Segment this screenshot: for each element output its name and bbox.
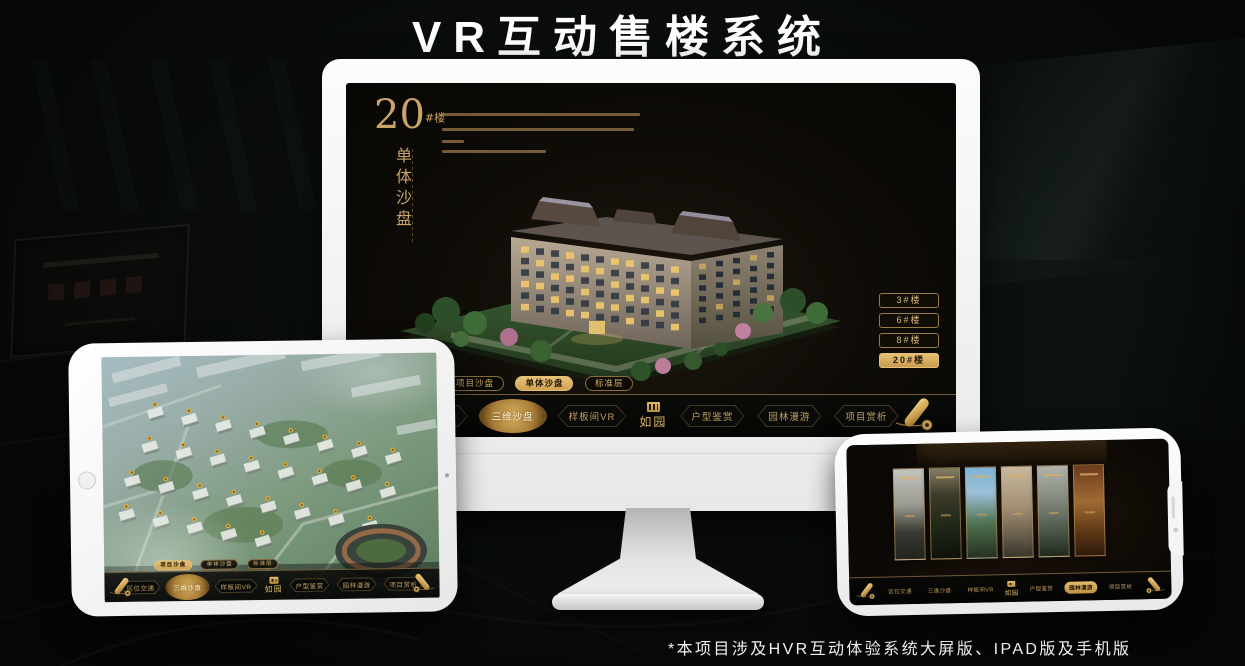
tab-project-sandtable[interactable]: 项目沙盘 bbox=[154, 560, 192, 571]
tablet-floor-tab-bar: 项目沙盘 单体沙盘 标准层 bbox=[154, 552, 283, 572]
brand-logo-text: 如园 bbox=[1005, 586, 1019, 596]
scene-gallery bbox=[893, 464, 1106, 560]
brand-logo: 如园 bbox=[264, 576, 282, 594]
page-title: VR互动售楼系统 bbox=[0, 1, 1245, 65]
building-tab-3[interactable]: 3#楼 bbox=[879, 293, 939, 308]
brand-logo-text: 如园 bbox=[639, 413, 667, 430]
nav-item-floorplan-gallery[interactable]: 户型鉴赏 bbox=[680, 405, 744, 427]
phone-device: 区位交通 三维沙盘 样板间VR 如园 户型鉴赏 园林漫游 项目赏析 bbox=[834, 427, 1184, 616]
phone-notch bbox=[1167, 481, 1184, 555]
tablet-nav-bar: 区位交通 三维沙盘 样板间VR 如园 户型鉴赏 园林漫游 项目赏析 bbox=[104, 568, 439, 603]
tablet-home-button[interactable] bbox=[78, 471, 96, 489]
tab-single-sandtable[interactable]: 单体沙盘 bbox=[515, 376, 573, 391]
tab-standard-floor[interactable]: 标准层 bbox=[247, 559, 279, 569]
nav-item-garden-tour[interactable]: 园林漫游 bbox=[336, 577, 376, 592]
nav-item-garden-tour[interactable]: 园林漫游 bbox=[1064, 581, 1098, 594]
tablet-device: 项目沙盘 单体沙盘 标准层 区位交通 三维沙盘 样板间VR 如园 户型鉴赏 园林… bbox=[68, 338, 458, 616]
gallery-panel-6[interactable] bbox=[1073, 464, 1106, 557]
nav-item-showroom-vr[interactable]: 样板间VR bbox=[962, 583, 998, 596]
seal-icon bbox=[647, 402, 660, 412]
gallery-panel-1[interactable] bbox=[893, 468, 926, 561]
monitor-stand-base bbox=[552, 594, 764, 610]
building-tab-20[interactable]: 20#楼 bbox=[879, 353, 939, 368]
tab-single-sandtable[interactable]: 单体沙盘 bbox=[201, 559, 239, 570]
scroll-menu-icon-right[interactable] bbox=[405, 571, 435, 595]
building-3d-render[interactable] bbox=[391, 163, 851, 398]
building-tab-8[interactable]: 8#楼 bbox=[879, 333, 939, 348]
mist-overlay-2 bbox=[296, 353, 440, 421]
brand-logo: 如园 bbox=[1004, 580, 1018, 596]
speaker-slit bbox=[1172, 497, 1175, 519]
building-selector: 3#楼 6#楼 8#楼 20#楼 bbox=[879, 293, 941, 373]
building-tab-6[interactable]: 6#楼 bbox=[879, 313, 939, 328]
front-camera-dot bbox=[1173, 527, 1178, 532]
nav-item-project-gallery[interactable]: 项目赏析 bbox=[1104, 580, 1138, 593]
desktop-heading: 20#楼 bbox=[374, 95, 445, 135]
gallery-panel-5[interactable] bbox=[1037, 465, 1070, 558]
scroll-menu-icon-left[interactable] bbox=[108, 575, 138, 599]
poster-canvas: VR互动售楼系统 *本项目涉及HVR互动体验系统大屏版、IPAD版及手机版 20… bbox=[0, 0, 1245, 666]
building-number: 20 bbox=[374, 92, 425, 138]
footnote: *本项目涉及HVR互动体验系统大屏版、IPAD版及手机版 bbox=[668, 635, 1131, 659]
brand-logo-text: 如园 bbox=[264, 583, 282, 594]
brand-logo: 如园 bbox=[639, 402, 667, 430]
nav-item-project-gallery[interactable]: 项目赏析 bbox=[834, 405, 898, 427]
seal-icon bbox=[269, 576, 278, 583]
phone-nav-bar: 区位交通 三维沙盘 样板间VR 如园 户型鉴赏 园林漫游 项目赏析 bbox=[849, 571, 1172, 606]
phone-screen: 区位交通 三维沙盘 样板间VR 如园 户型鉴赏 园林漫游 项目赏析 bbox=[846, 439, 1171, 606]
nav-item-garden-tour[interactable]: 园林漫游 bbox=[757, 405, 821, 427]
nav-item-3d-sandtable[interactable]: 三维沙盘 bbox=[923, 584, 957, 597]
nav-item-location-transport[interactable]: 区位交通 bbox=[883, 584, 917, 597]
nav-item-showroom-vr[interactable]: 样板间VR bbox=[214, 579, 257, 594]
scroll-menu-icon-left[interactable] bbox=[855, 580, 881, 603]
nav-item-floorplan-gallery[interactable]: 户型鉴赏 bbox=[289, 578, 329, 593]
gallery-panel-3[interactable] bbox=[965, 466, 998, 559]
seal-icon bbox=[1007, 580, 1015, 586]
floor-tab-bar: 项目沙盘 单体沙盘 标准层 bbox=[446, 373, 640, 391]
gallery-panel-2[interactable] bbox=[929, 467, 962, 560]
nav-item-3d-sandtable[interactable]: 三维沙盘 bbox=[481, 405, 545, 427]
nav-item-showroom-vr[interactable]: 样板间VR bbox=[558, 405, 627, 427]
nav-item-3d-sandtable[interactable]: 三维沙盘 bbox=[167, 579, 207, 594]
scroll-menu-icon[interactable] bbox=[894, 395, 946, 433]
scroll-menu-icon-right[interactable] bbox=[1139, 574, 1165, 597]
tab-standard-floor[interactable]: 标准层 bbox=[585, 376, 634, 391]
tablet-screen: 项目沙盘 单体沙盘 标准层 区位交通 三维沙盘 样板间VR 如园 户型鉴赏 园林… bbox=[101, 353, 439, 603]
gallery-panel-4[interactable] bbox=[1001, 466, 1034, 559]
tablet-camera bbox=[445, 473, 449, 477]
nav-item-floorplan-gallery[interactable]: 户型鉴赏 bbox=[1025, 581, 1059, 594]
